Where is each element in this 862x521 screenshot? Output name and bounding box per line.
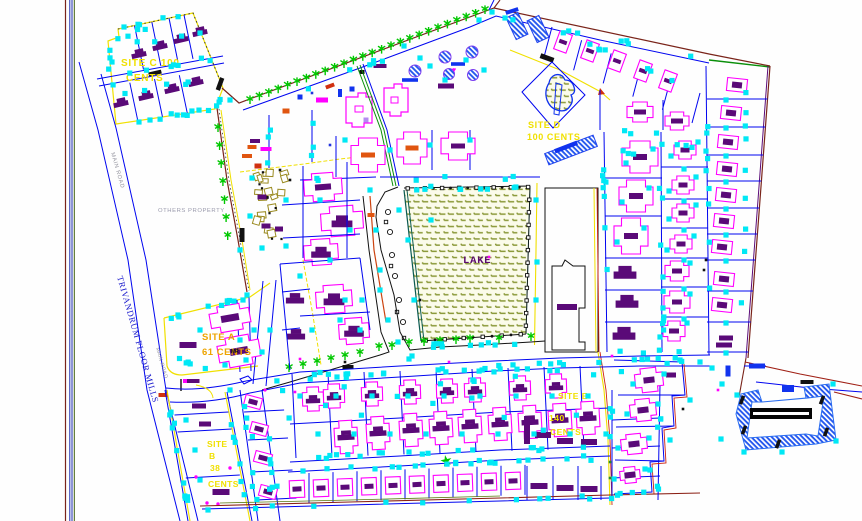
- svg-text:LAKE: LAKE: [463, 255, 491, 267]
- svg-text:140: 140: [549, 413, 565, 423]
- svg-text:SITE D: SITE D: [528, 120, 561, 130]
- svg-text:B: B: [209, 451, 216, 461]
- svg-text:38: 38: [210, 463, 220, 473]
- svg-text:SITE E: SITE E: [558, 391, 588, 401]
- svg-text:MR: MR: [231, 349, 239, 355]
- svg-text:61 CENTS: 61 CENTS: [202, 347, 251, 358]
- svg-text:CENTS: CENTS: [208, 479, 239, 489]
- svg-text:OTHERS PROPERTY: OTHERS PROPERTY: [158, 208, 225, 214]
- svg-text:100 CENTS: 100 CENTS: [527, 132, 580, 142]
- svg-text:SITE A: SITE A: [202, 332, 235, 343]
- svg-text:SITE: SITE: [207, 439, 228, 449]
- svg-text:CENTS: CENTS: [550, 427, 581, 437]
- svg-text:♥: ♥: [452, 67, 456, 74]
